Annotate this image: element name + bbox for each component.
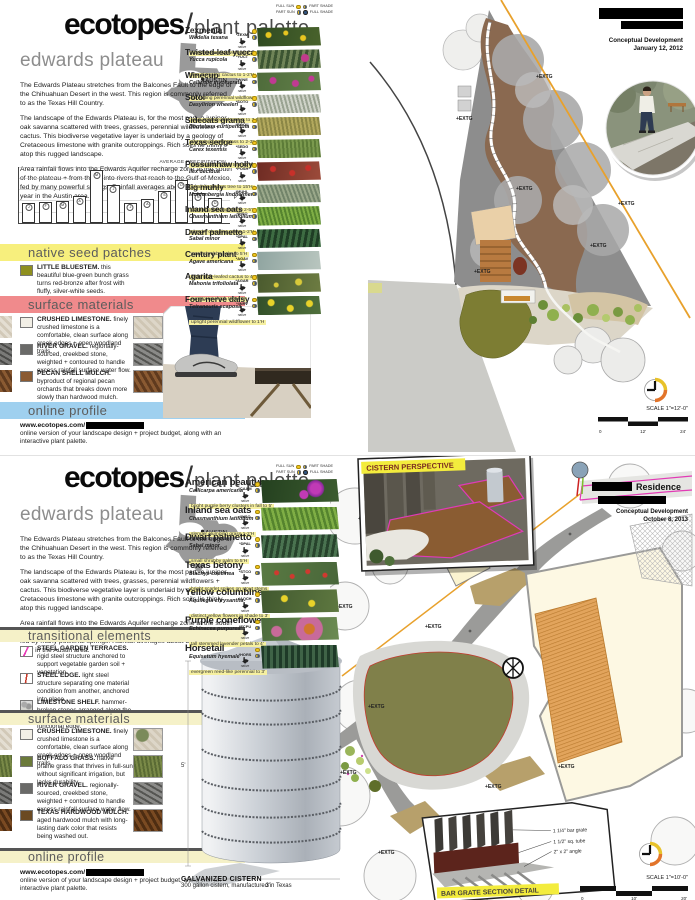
svg-text:+EXTG: +EXTG [378,850,395,856]
material-photo [133,782,163,805]
plant-entry: American beautyberry Callicarpa american… [185,478,345,506]
plant-code-block: *SOTO native [232,99,252,116]
full-sun-icon [255,648,260,653]
full-sun-icon [296,465,301,470]
plant-photo [261,562,339,586]
full-sun-icon [296,5,301,10]
plant-description: evergreen reed-like perennial to 3' [189,670,267,675]
plant-code: *DPAL [232,234,252,239]
full-shade-icon [303,10,308,15]
plant-photo [261,534,339,558]
part-sun-icon [255,598,260,603]
material-term: RIVER GRAVEL. [37,343,88,350]
precip-bar: J [107,167,120,223]
native-label: native [232,201,252,205]
texas-native-icon [241,547,249,554]
project-date: October 8, 2013 [643,517,688,523]
texas-native-icon [238,172,246,179]
material-swatch [20,783,33,794]
light-requirement-icons [252,298,257,309]
plant-code: *WINE [232,77,252,82]
plant-photo [261,617,339,641]
material-swatch [20,729,33,740]
plant-code-block: *POSH native [232,166,252,183]
plant-entry: Zexmenia Wedelia texana woody perennial … [185,26,325,48]
texas-native-icon [238,105,246,112]
plant-palette-list: American beautyberry Callicarpa american… [185,478,345,671]
plant-photo [261,645,339,669]
light-requirement-icons [255,648,260,659]
texas-native-icon [238,82,246,89]
full-sun-icon [255,592,260,597]
texas-native-icon [238,239,246,246]
texas-native-icon [241,657,249,664]
brand-name: ecotopes [64,8,184,41]
native-label: native [235,526,255,530]
material-swatch [20,265,33,276]
house-outline [370,62,456,285]
full-sun-icon [252,29,257,34]
full-shade-icon [303,470,308,475]
light-requirement-icons [252,51,257,62]
plant-photo [257,72,321,92]
part-sun-icon [252,57,257,62]
light-requirement-icons [252,141,257,152]
site-plan-rendering: +EXTG +EXTG +EXTG +EXTG +EXTG +EXTG +EXT… [330,456,695,900]
full-sun-icon [255,510,260,515]
svg-text:10': 10' [631,896,637,900]
month-label: F [42,203,49,210]
plant-photo [261,589,339,613]
native-label: native [235,554,255,558]
cistern-symbol [503,658,523,678]
scale-label: SCALE 1"=10'-0" [646,875,688,881]
plant-code-block: *INSO native [232,211,252,228]
native-label: native [235,664,255,668]
light-requirement-icons [255,537,260,548]
light-requirement-icons [252,275,257,286]
material-term: CRUSHED LIMESTONE. [37,728,112,735]
native-label: native [235,581,255,585]
project-date: January 12, 2012 [633,45,683,52]
svg-text:+EXTG: +EXTG [474,269,491,275]
part-sun-icon [252,125,257,130]
plant-photo [257,229,321,249]
part-shade-icon [303,5,308,10]
svg-text:20': 20' [681,896,687,900]
full-sun-icon [252,253,257,258]
texas-native-icon [238,306,246,313]
plant-code-block: *DPAL native [232,234,252,251]
part-sun-icon [252,35,257,40]
tank-body [202,661,340,863]
part-sun-icon [252,281,257,286]
surface-material-list: CRUSHED LIMESTONE. finely crushed limest… [20,728,168,836]
texas-native-icon [238,217,246,224]
plant-photo [257,184,321,204]
month-label: A [76,198,83,205]
light-requirement-icons [252,253,257,264]
month-label: M [59,202,66,209]
seed-patch-list: LITTLE BLUESTEM. this beautiful blue-gre… [20,264,168,291]
part-sun-icon [255,516,260,521]
svg-text:1 1/4" bar grate: 1 1/4" bar grate [553,827,588,834]
redacted-address [598,496,666,504]
texas-native-icon [238,60,246,67]
plant-code: *ECPU [235,624,255,629]
material-photo [133,343,163,366]
tree-marker [572,462,588,478]
part-sun-icon [297,10,302,15]
svg-text:24': 24' [680,429,686,434]
bench [668,103,686,107]
precip-bar: J [22,167,35,223]
plant-code-block: *AGAR native [232,278,252,295]
material-edge-photo [0,782,12,804]
texas-native-icon [241,574,249,581]
native-label: native [235,636,255,640]
full-sun-icon [252,141,257,146]
part-sun-icon [252,237,257,242]
material-edge-photo [0,755,12,777]
plant-code: *DPAL [235,541,255,546]
scale-label: SCALE 1"=12'-0" [646,406,688,412]
brand-name: ecotopes [64,461,184,494]
native-label: native [232,156,252,160]
part-sun-icon [255,488,260,493]
redacted-client-name [592,482,632,491]
month-label: M [93,172,100,179]
board-january-2012: ecotopes/plant palette FULL SUNPART SHAD… [0,0,695,455]
plant-code: *4NRV [232,301,252,306]
region-title: edwards plateau [20,504,164,526]
part-sun-icon [252,147,257,152]
cistern-in-photo [486,470,503,503]
plant-code-block: *ECPU native [235,624,255,641]
texas-native-icon [241,602,249,609]
full-sun-icon [252,163,257,168]
light-requirement-icons [252,231,257,242]
part-sun-icon [255,626,260,631]
material-description: byproduct of regional pecan orchards tha… [37,378,127,401]
full-sun-icon [255,620,260,625]
plant-entry: Purple coneflower Echinacea purpurea tal… [185,616,345,644]
part-sun-icon [252,304,257,309]
plant-code-block: *MUHL native [232,189,252,206]
svg-text:0: 0 [581,896,584,900]
part-sun-icon [252,102,257,107]
plant-photo [257,139,321,159]
profile-url[interactable]: www.ecotopes.com/ [20,869,144,876]
light-requirement-icons [252,74,257,85]
material-term: TEXAS HARDWOOD MULCH. [37,809,129,816]
material-swatch [20,810,33,821]
texas-native-icon [238,127,246,134]
surface-material-list: CRUSHED LIMESTONE. finely crushed limest… [20,316,168,397]
material-entry: PECAN SHELL MULCH. byproduct of regional… [20,370,168,395]
month-label: O [178,182,185,189]
texas-native-icon [241,519,249,526]
material-entry: RIVER GRAVEL. regionally-sourced, creekb… [20,343,168,368]
part-sun-icon [255,543,260,548]
plant-photo [257,49,321,69]
plant-code-block: *BOCU native [232,122,252,139]
month-label: J [25,204,32,211]
svg-text:+EXTG: +EXTG [558,764,575,770]
native-label: native [235,609,255,613]
native-label: native [232,179,252,183]
plant-entry: Texas sedge Carex texensis fine-textured… [185,138,325,160]
plant-code-block: *WINE native [232,77,252,94]
material-photo [133,316,163,339]
material-photo [133,755,163,778]
light-requirement-icons [252,29,257,40]
month-label: A [144,201,151,208]
precip-bar: A [73,167,86,223]
material-entry: STEEL GARDEN TERRACES. rigid steel struc… [20,645,168,670]
part-sun-icon [252,192,257,197]
plant-entry: Winecup Callirhoe involucrata spreading … [185,71,325,93]
material-term: PECAN SHELL MULCH. [37,370,111,377]
plant-code: *POSH [232,166,252,171]
svg-text:+EXTG: +EXTG [456,116,473,122]
plant-code: *INSO [235,514,255,519]
plant-entry: Four-nerve daisy Tetraneuris scaposa upr… [185,295,325,317]
plant-photo [257,251,321,271]
plant-code-block: *CAAM native [235,486,255,503]
light-requirement-icons [255,592,260,603]
month-label: J [127,204,134,211]
plant-photo [257,296,321,316]
part-sun-icon [255,571,260,576]
plant-photo [257,27,321,47]
redacted-url-segment [86,869,144,876]
svg-text:1 1/2" sq. tube: 1 1/2" sq. tube [553,838,585,845]
profile-url[interactable]: www.ecotopes.com/ [20,422,144,429]
plant-code-block: *SEDG native [232,144,252,161]
full-sun-icon [252,51,257,56]
svg-text:+EXTG: +EXTG [485,784,502,790]
full-sun-icon [252,275,257,280]
svg-text:0: 0 [599,429,602,434]
native-label: native [232,313,252,317]
texas-native-icon [241,629,249,636]
material-entry: CRUSHED LIMESTONE. finely crushed limest… [20,316,168,341]
plant-entry: Dwarf palmetto Sabal minor small shrubby… [185,533,345,561]
native-label: native [232,89,252,93]
material-edge-photo [0,370,12,392]
plant-entry: Possumhaw holly Ilex decidua small decid… [185,160,325,182]
material-photo [133,809,163,832]
material-term: STEEL GARDEN TERRACES. [37,645,128,652]
region-title: edwards plateau [20,50,164,72]
full-sun-icon [252,186,257,191]
plant-code-block: *STCO native [235,569,255,586]
full-sun-icon [252,208,257,213]
material-term: LIMESTONE SHELF. [37,699,100,706]
part-sun-icon [252,214,257,219]
project-phase: Conceptual Development [616,509,688,515]
material-swatch [20,317,33,328]
plant-photo [257,206,321,226]
material-description: aged hardwood mulch with long-lasting da… [37,817,128,840]
north-arrow-icon [640,844,661,865]
plant-entry: Dwarf palmetto Sabal minor small shrubby… [185,228,325,250]
material-term: LITTLE BLUESTEM. [37,264,99,271]
plant-code-block: *INSO native [235,514,255,531]
precip-bar: J [124,167,137,223]
plant-code: *HORS [235,652,255,657]
texas-native-icon [241,492,249,499]
plant-code: *STCO [235,569,255,574]
plant-code-block: *4NRV native [232,301,252,318]
plant-code: *MUHL [232,189,252,194]
bench [504,296,530,301]
plant-entry: Agarita Mahonia trifoliolata evergreen s… [185,272,325,294]
part-shade-icon [303,465,308,470]
plant-entry: Twisted-leaf yucca Yucca rupicola low, c… [185,48,325,70]
precip-bar: F [39,167,52,223]
board-october-2013: ecotopes/plant palette FULL SUNPART SHAD… [0,455,695,900]
light-requirement-icons [255,565,260,576]
cistern-perspective-photo: CISTERN PERSPECTIVE [358,456,537,576]
client-label: Residence [636,482,681,492]
material-term: CRUSHED LIMESTONE. [37,316,112,323]
presentation-boards: ecotopes/plant palette FULL SUNPART SHAD… [0,0,695,900]
texas-native-icon [238,194,246,201]
full-sun-icon [252,298,257,303]
plant-photo [257,117,321,137]
light-requirement-icons [252,208,257,219]
plant-code-block: *AGAV native [232,256,252,273]
material-entry: BUFFALO GRASS. native prairie grass that… [20,755,168,780]
plant-code: *CAAM [235,486,255,491]
precip-bar: A [141,167,154,223]
precip-bar: M [56,167,69,223]
plant-entry: Horsetail Equisetum hyemale evergreen re… [185,644,345,672]
height-dimension: 5' [181,763,185,769]
precip-bar: M [90,167,103,223]
plant-code: *ZEXM [232,32,252,37]
plant-photo [261,479,339,503]
material-photo [133,370,163,393]
material-edge-photo [0,316,12,338]
svg-text:+EXTG: +EXTG [536,74,553,80]
material-entry: STEEL EDGE. light steel structure separa… [20,672,168,697]
svg-text:12': 12' [640,429,646,434]
redacted-url-segment [86,422,144,429]
month-label: S [161,192,168,199]
svg-text:+EXTG: +EXTG [425,624,442,630]
material-entry: CRUSHED LIMESTONE. finely crushed limest… [20,728,168,753]
texas-native-icon [238,284,246,291]
plant-entry: Yellow columbine Aquilegia chrysantha di… [185,588,345,616]
cistern-caption: GALVANIZED CISTERN 300 gallon cistern, m… [181,876,351,889]
light-requirement-icons [252,186,257,197]
svg-text:+EXTG: +EXTG [590,243,607,249]
sun-legend: FULL SUNPART SHADE PART SUNFULL SHADE [276,464,333,475]
full-sun-icon [252,231,257,236]
plant-entry: Century plant Agave americana large gray… [185,250,325,272]
part-sun-icon [255,654,260,659]
full-sun-icon [255,482,260,487]
material-entry: RIVER GRAVEL. regionally-sourced, creekb… [20,782,168,807]
plant-code: *AGAR [232,278,252,283]
material-swatch [20,673,33,684]
plant-code-block: *HORS native [235,652,255,669]
full-sun-icon [252,96,257,101]
light-requirement-icons [252,96,257,107]
material-swatch [20,646,33,657]
site-plan-rendering: +EXTG +EXTG +EXTG +EXTG +EXTG +EXTG [368,0,695,452]
texas-native-icon [238,261,246,268]
material-entry: TEXAS HARDWOOD MULCH. aged hardwood mulc… [20,809,168,834]
sun-legend: FULL SUNPART SHADE PART SUNFULL SHADE [276,4,333,15]
plant-entry: Inland sea oats Chasmanthium latifolium … [185,506,345,534]
native-label: native [232,112,252,116]
plant-code: *SEDG [232,144,252,149]
plant-code-block: *DPAL native [235,541,255,558]
plant-entry: Big muhly Muhlenbergia lindheimeri clump… [185,183,325,205]
precip-bar: S [158,167,171,223]
native-label: native [232,291,252,295]
plant-palette-list: Zexmenia Wedelia texana woody perennial … [185,26,325,317]
bar-grate-detail: 1 1/4" bar grate 1 1/2" sq. tube 2" x 2"… [422,801,615,900]
material-term: STEEL EDGE. [37,672,80,679]
plant-code-block: *ZEXM native [232,32,252,49]
native-label: native [235,499,255,503]
full-sun-icon [252,119,257,124]
material-photo [133,728,163,751]
light-requirement-icons [252,119,257,130]
material-swatch [20,344,33,355]
plant-entry: Inland sea oats Chasmanthium latifolium … [185,205,325,227]
native-label: native [232,134,252,138]
material-edge-photo [0,343,12,365]
native-label: native [232,67,252,71]
plant-code-block: *AQCH native [235,596,255,613]
native-label: native [232,268,252,272]
material-term: BUFFALO GRASS. [37,755,95,762]
plant-photo [257,161,321,181]
plant-photo [261,507,339,531]
material-edge-photo [0,728,12,750]
plant-entry: Sideoats grama Bouteloua curtipendula cl… [185,116,325,138]
project-phase: Conceptual Development [609,37,683,44]
part-sun-icon [297,470,302,475]
part-sun-icon [252,259,257,264]
light-requirement-icons [252,163,257,174]
plant-code: *BOCU [232,122,252,127]
plant-code: *YUCT [232,54,252,59]
plant-photo [257,273,321,293]
redacted-client-name [599,8,683,19]
svg-text:+EXTG: +EXTG [618,201,635,207]
full-sun-icon [255,565,260,570]
full-sun-icon [255,537,260,542]
light-requirement-icons [255,620,260,631]
plant-code-block: *YUCT native [232,54,252,71]
deck-perspective-photo [600,66,695,181]
material-swatch [20,371,33,382]
part-sun-icon [252,80,257,85]
plant-code: *SOTO [232,99,252,104]
scale-bar: SCALE 1"=12'-0" 0 12' 24' [598,406,688,434]
terrace [471,205,516,245]
plant-entry: Sotol Dasylirion wheeleri long, spiny-le… [185,93,325,115]
redacted-address [621,21,683,29]
light-requirement-icons [255,510,260,521]
